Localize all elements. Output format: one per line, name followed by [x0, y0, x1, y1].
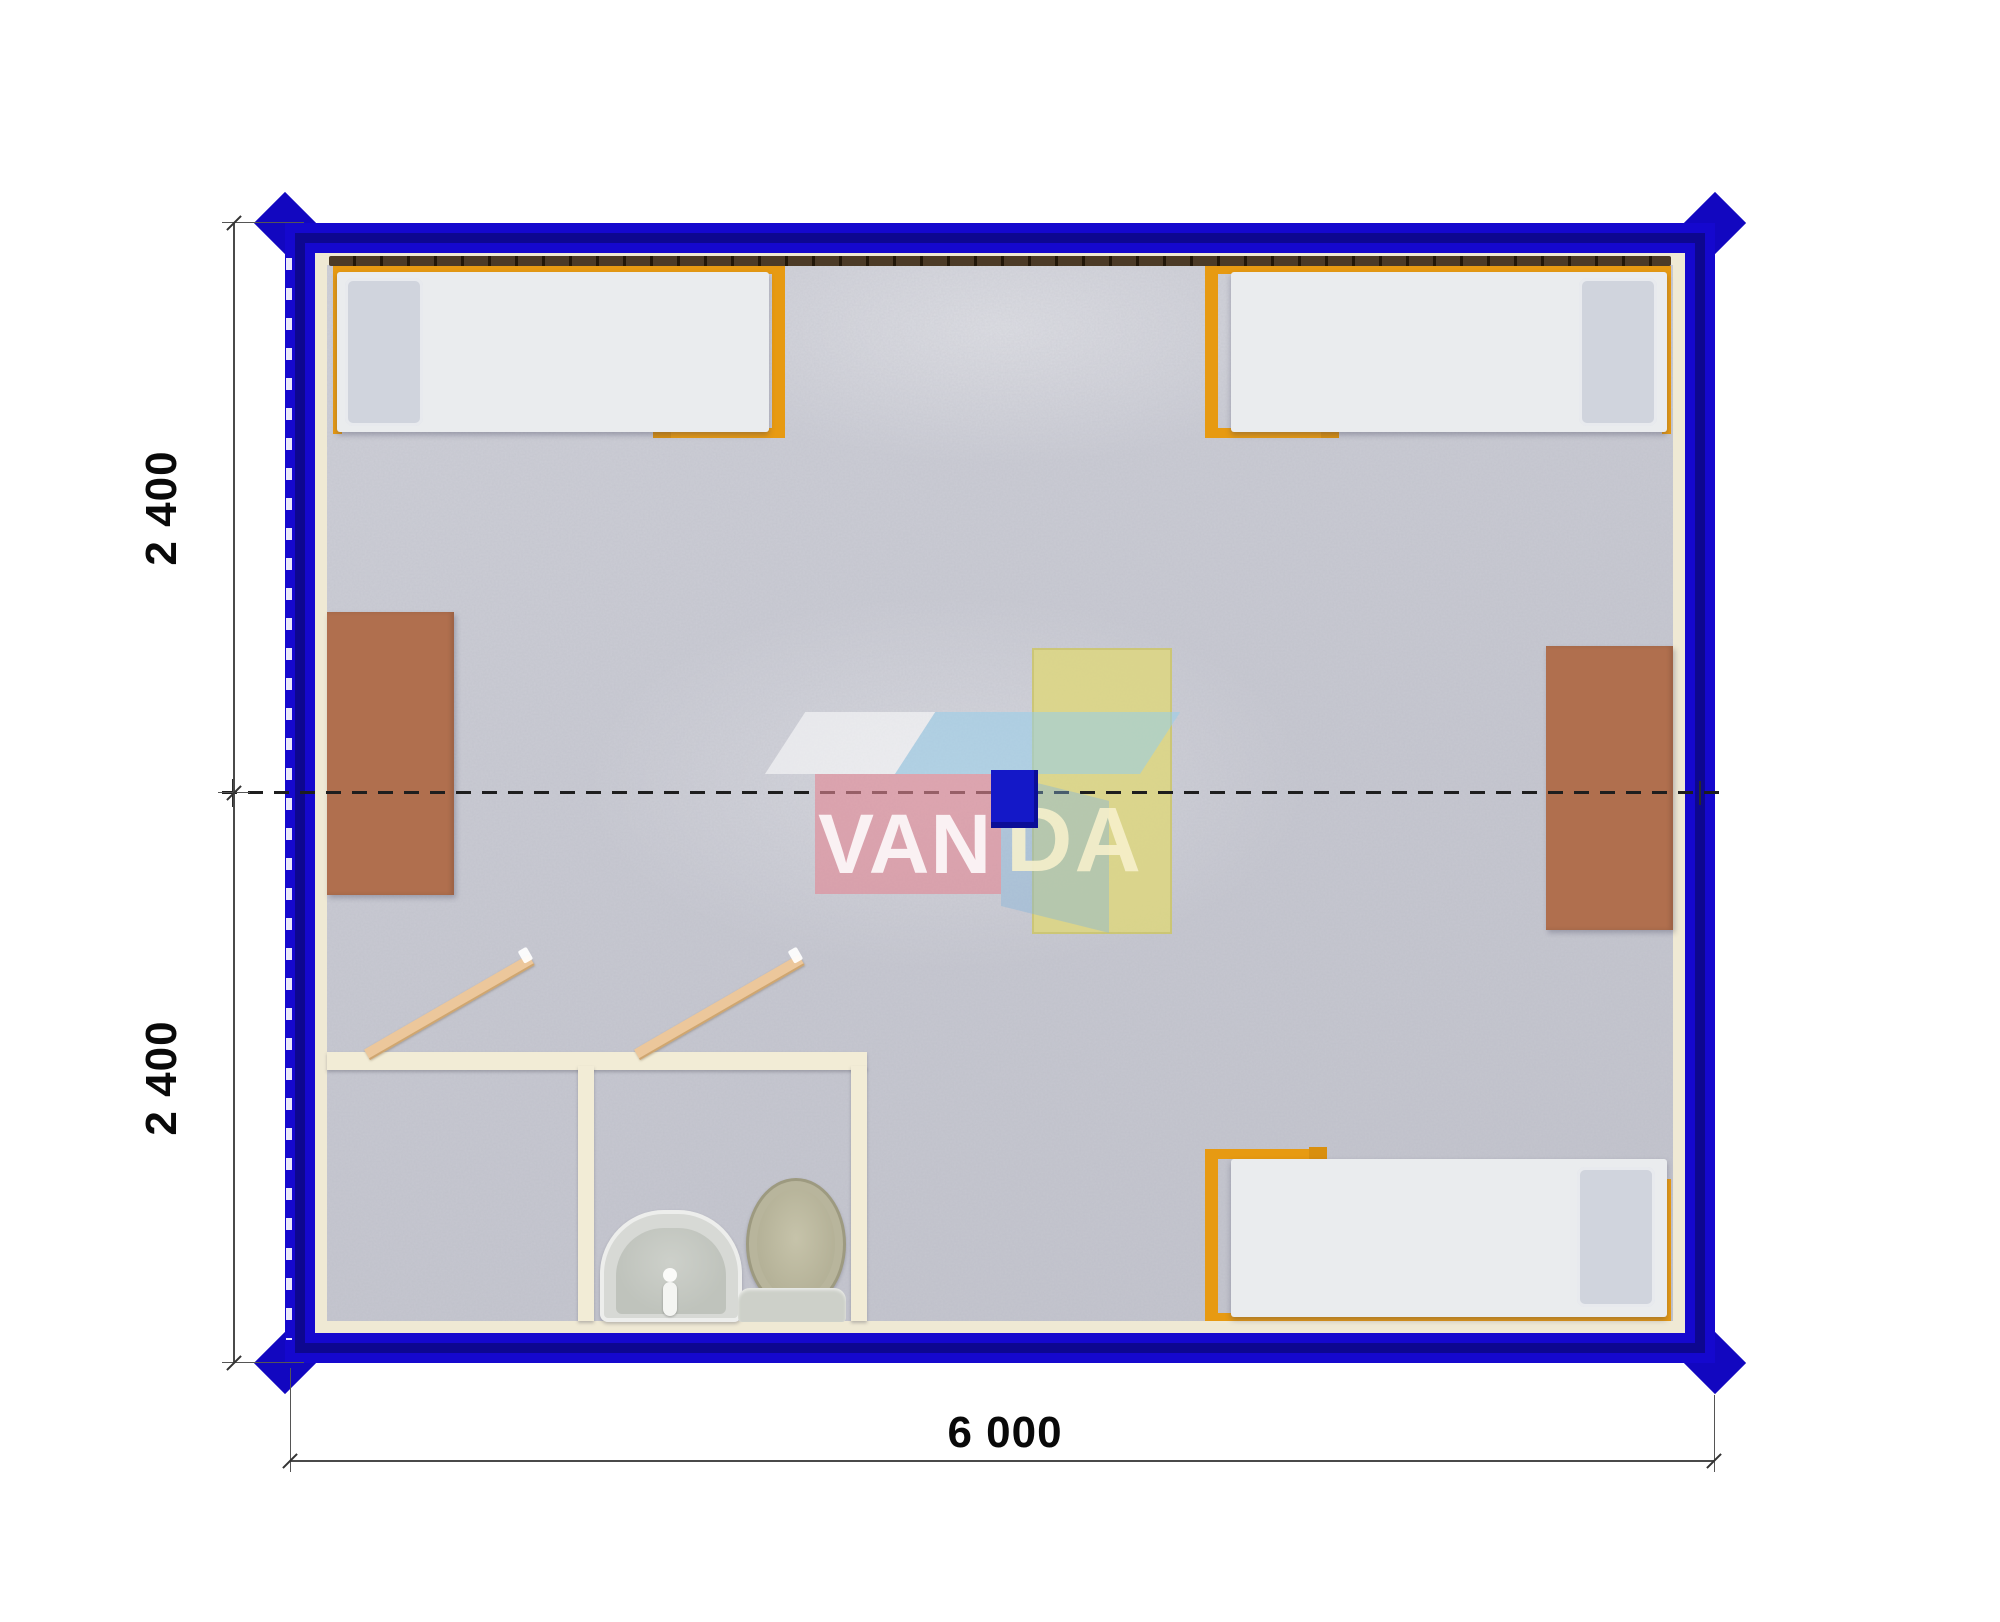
bathroom-wall-top	[327, 1052, 867, 1070]
desk-right	[1546, 646, 1673, 930]
bed-top-right	[1205, 266, 1671, 438]
bed-frame-rail	[1205, 1149, 1315, 1159]
pillow	[345, 278, 423, 426]
sink-drain	[663, 1268, 677, 1282]
sink	[600, 1210, 742, 1322]
toilet-base	[738, 1288, 846, 1322]
pillow	[1579, 278, 1657, 426]
logo-blue-square	[991, 770, 1038, 828]
bed-frame-foot	[1205, 266, 1218, 438]
dimension-label-2400-bottom: 2 400	[138, 993, 186, 1163]
dimension-label-6000: 6 000	[920, 1408, 1090, 1458]
dimension-line-horizontal	[290, 1460, 1714, 1462]
bed-frame-foot	[772, 266, 785, 438]
pillow	[1577, 1167, 1655, 1307]
toilet-lid-inner	[757, 1189, 835, 1299]
logo-text-van: VAN	[818, 802, 992, 886]
logo-top-face-blue	[895, 712, 1180, 774]
floorplan-canvas: VAN DA 2 400 2 400 6 000	[0, 0, 2000, 1622]
centerline-tick	[1699, 781, 1701, 805]
bed-frame-foot	[1205, 1149, 1218, 1321]
top-wall-rail	[329, 256, 1671, 266]
bathroom-wall-right	[851, 1066, 867, 1321]
bathroom-wall-divider	[578, 1066, 594, 1321]
sink-faucet	[663, 1282, 677, 1316]
desk-left	[327, 612, 454, 895]
bed-bottom-right	[1205, 1149, 1671, 1321]
extension-line	[290, 1368, 291, 1472]
bed-top-left	[333, 266, 785, 438]
left-wall-profile-dashes	[286, 258, 292, 1340]
dimension-label-2400-top: 2 400	[138, 423, 186, 593]
